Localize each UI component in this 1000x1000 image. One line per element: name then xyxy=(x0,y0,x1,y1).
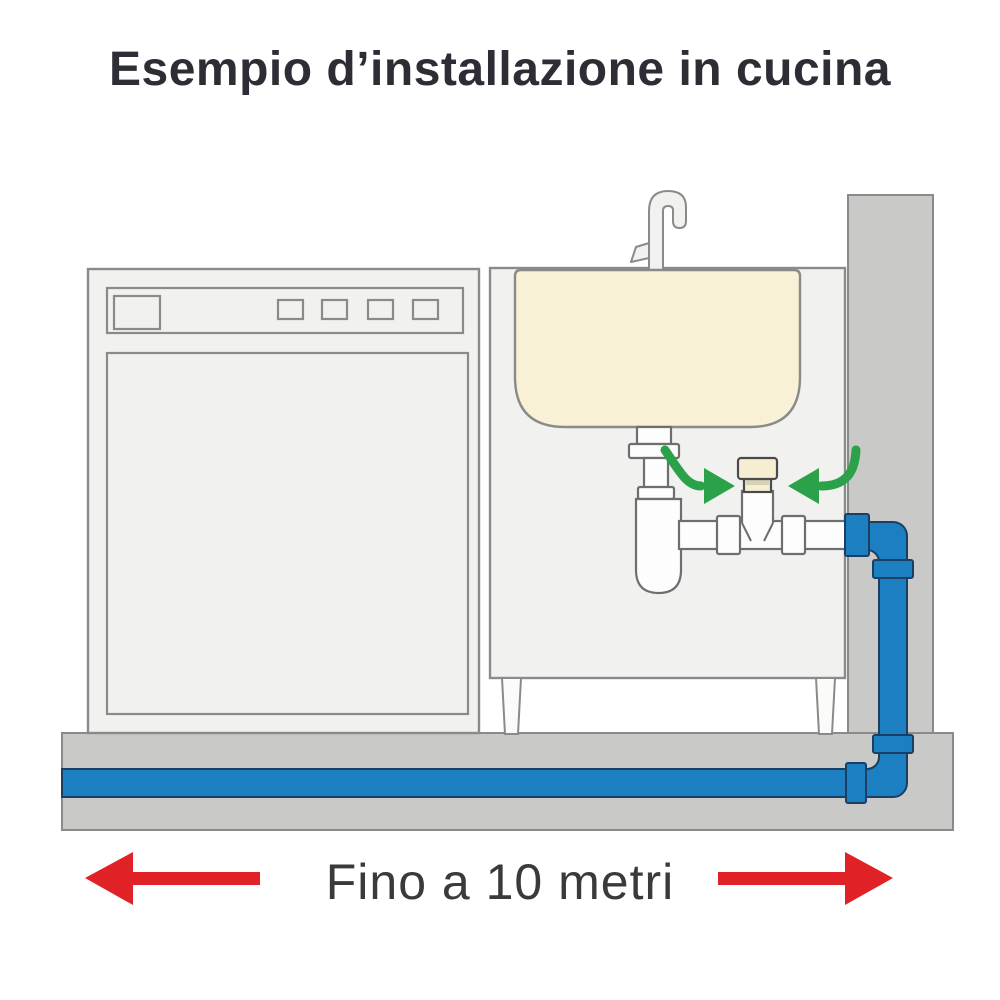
drain-tube xyxy=(644,458,668,488)
installation-illustration: Esempio d’installazione in cucina xyxy=(0,0,1000,1000)
tee-branch-pipe xyxy=(742,491,773,523)
dishwasher-button-4 xyxy=(413,300,438,319)
valve-band xyxy=(746,480,769,485)
installation-diagram xyxy=(0,0,1000,1000)
distance-label: Fino a 10 metri xyxy=(0,853,1000,911)
blue-pipe-coupling-upper xyxy=(873,560,913,578)
valve-cap xyxy=(738,458,777,479)
sink-cabinet-leg-left xyxy=(502,678,521,734)
drain-tailpiece xyxy=(637,427,671,444)
blue-pipe-connector xyxy=(845,514,869,556)
sink-basin xyxy=(515,270,800,427)
sink-cabinet-leg-right xyxy=(816,678,835,734)
dishwasher-display xyxy=(114,296,160,329)
bottle-trap xyxy=(636,499,681,593)
connection-valve xyxy=(738,458,777,492)
waste-pipe-horizontal xyxy=(679,521,852,549)
dishwasher xyxy=(88,269,479,733)
trap-collar xyxy=(638,487,674,499)
dishwasher-button-1 xyxy=(278,300,303,319)
blue-pipe-coupling-lower xyxy=(873,735,913,753)
waste-pipe-coupling-right xyxy=(782,516,805,554)
waste-pipe-coupling-left xyxy=(717,516,740,554)
faucet xyxy=(631,191,686,271)
dishwasher-button-2 xyxy=(322,300,347,319)
faucet-spout xyxy=(649,191,686,271)
dishwasher-button-3 xyxy=(368,300,393,319)
blue-pipe-coupling-floor xyxy=(846,763,866,803)
dishwasher-body xyxy=(88,269,479,733)
faucet-handle xyxy=(631,243,649,262)
